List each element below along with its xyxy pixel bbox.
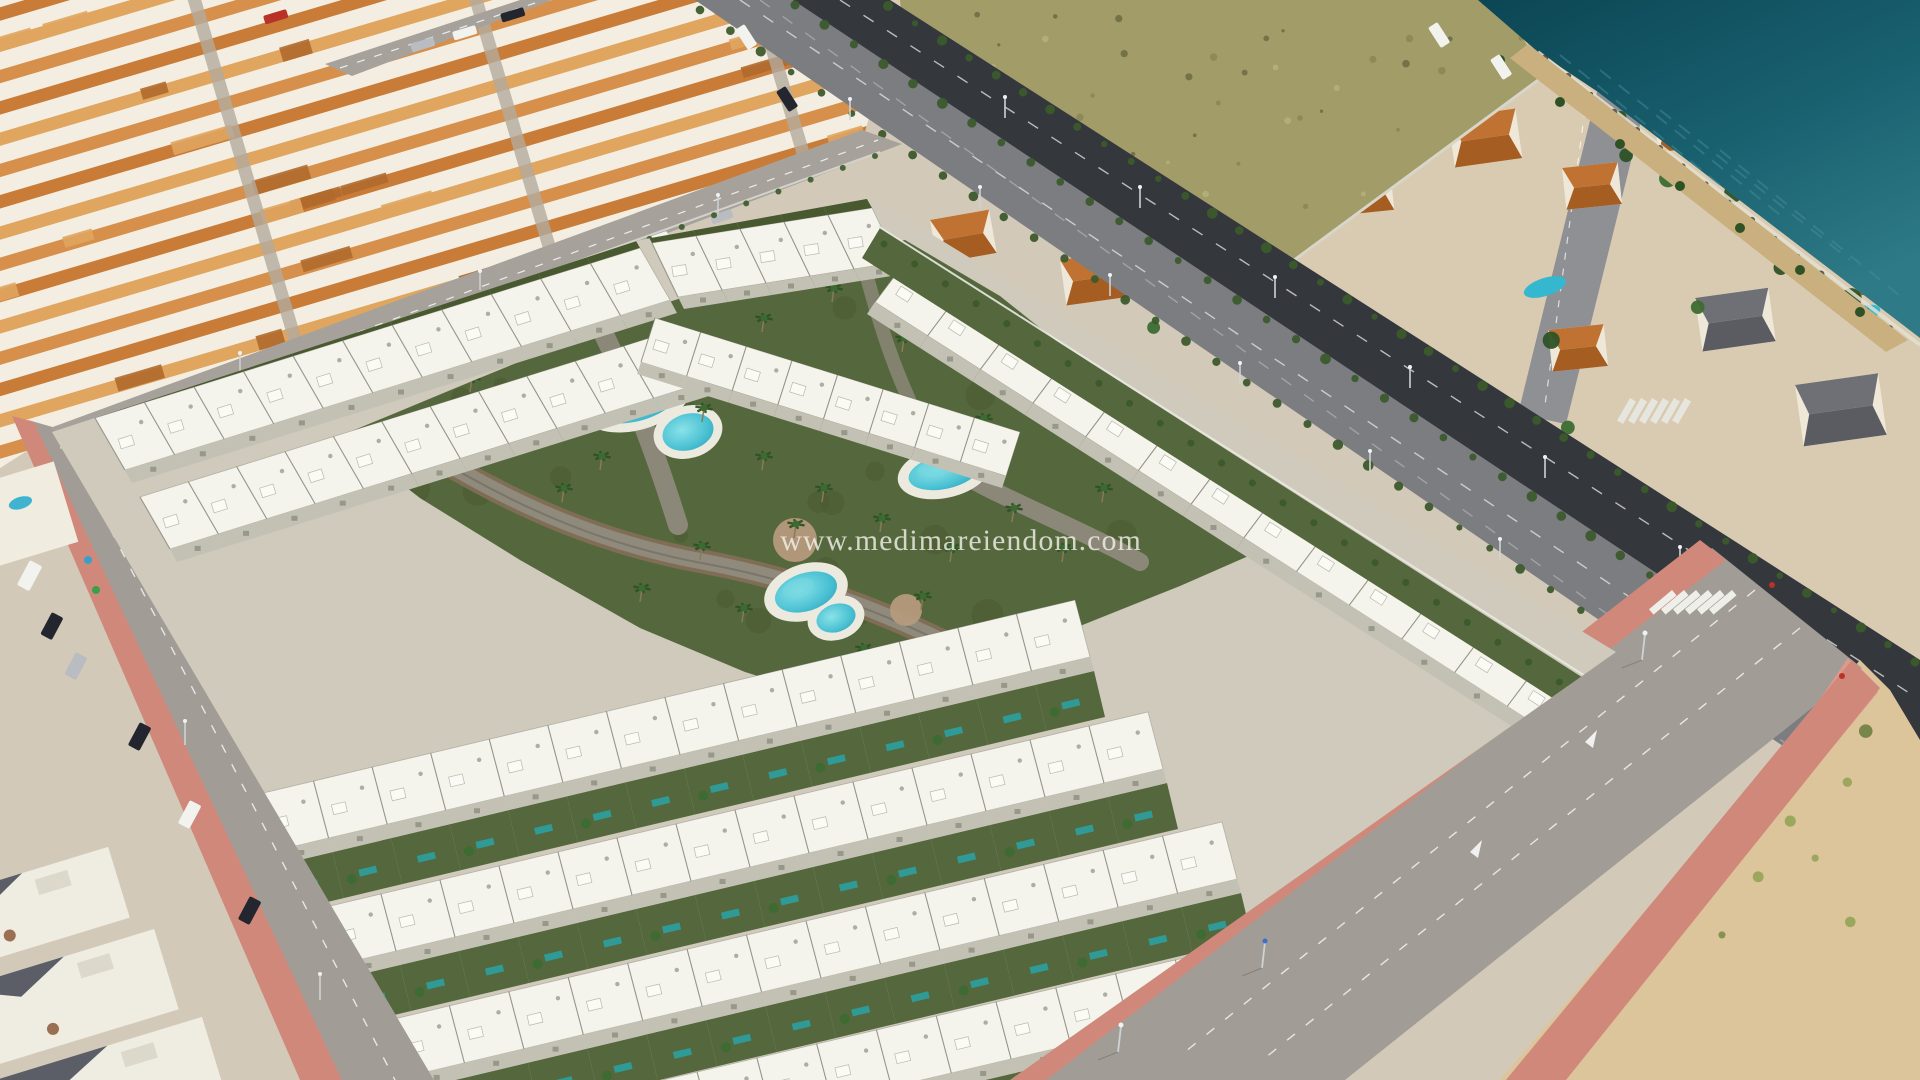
watermark-text: www.medimareiendom.com [780,524,1142,557]
scene-canvas: www.medimareiendom.com [0,0,1920,1080]
aerial-render: www.medimareiendom.com [0,0,1920,1080]
